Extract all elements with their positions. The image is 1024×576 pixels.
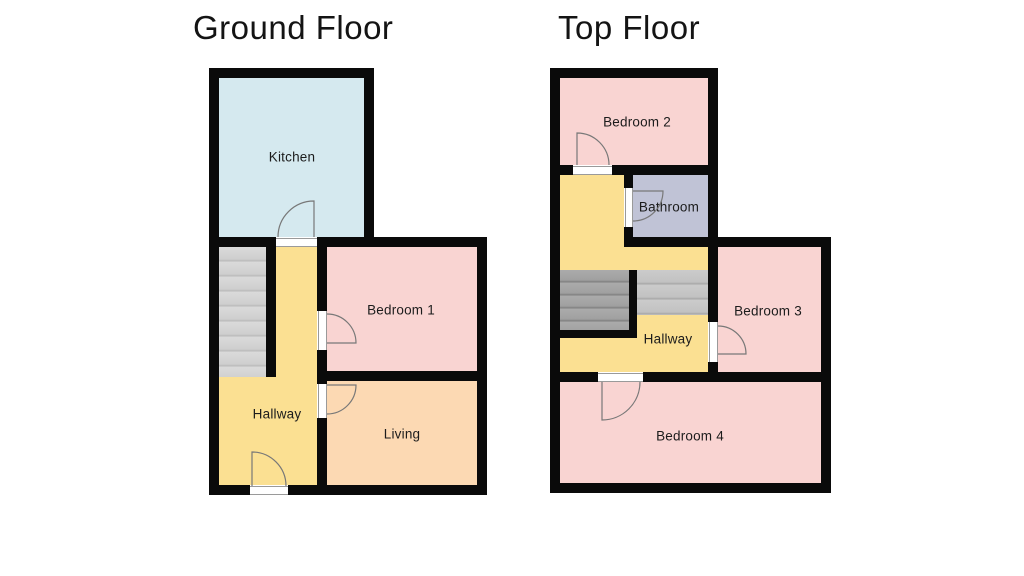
bedroom3-label: Bedroom 3 <box>734 304 802 319</box>
bedroom4-door-threshold <box>598 373 643 382</box>
stair-edge-wall <box>560 330 637 338</box>
wall <box>708 237 718 322</box>
wall <box>550 68 560 493</box>
bedroom2-label: Bedroom 2 <box>603 115 671 130</box>
wall <box>821 237 831 493</box>
bedroom3-door-threshold <box>709 322 718 362</box>
top-hallway-upper <box>560 175 624 247</box>
wall <box>550 372 598 382</box>
wall <box>643 372 831 382</box>
wall <box>624 237 831 247</box>
staircase-top-upper-flight <box>637 270 708 315</box>
top-hallway-label: Hallway <box>644 332 693 347</box>
wall <box>550 483 831 493</box>
bathroom-door-threshold <box>625 188 633 227</box>
top-floor-title: Top Floor <box>558 9 700 47</box>
top-hallway-strip <box>560 247 708 270</box>
floor-plan-canvas: Ground Floor Kitchen Bedroom 1 Hallway L… <box>0 0 1024 576</box>
wall <box>708 68 718 247</box>
wall <box>550 165 573 175</box>
wall <box>624 165 633 188</box>
top-floor-plan: Top Floor Bedroom 2 <box>0 0 1024 576</box>
bathroom-label: Bathroom <box>639 200 699 215</box>
wall <box>550 68 718 78</box>
stair-divider-wall <box>629 270 637 338</box>
wall <box>624 227 633 237</box>
bedroom2-door-threshold <box>573 166 612 175</box>
bedroom4-label: Bedroom 4 <box>656 429 724 444</box>
top-hallway-lower-left <box>560 338 637 372</box>
staircase-top-lower-flight <box>560 270 629 330</box>
